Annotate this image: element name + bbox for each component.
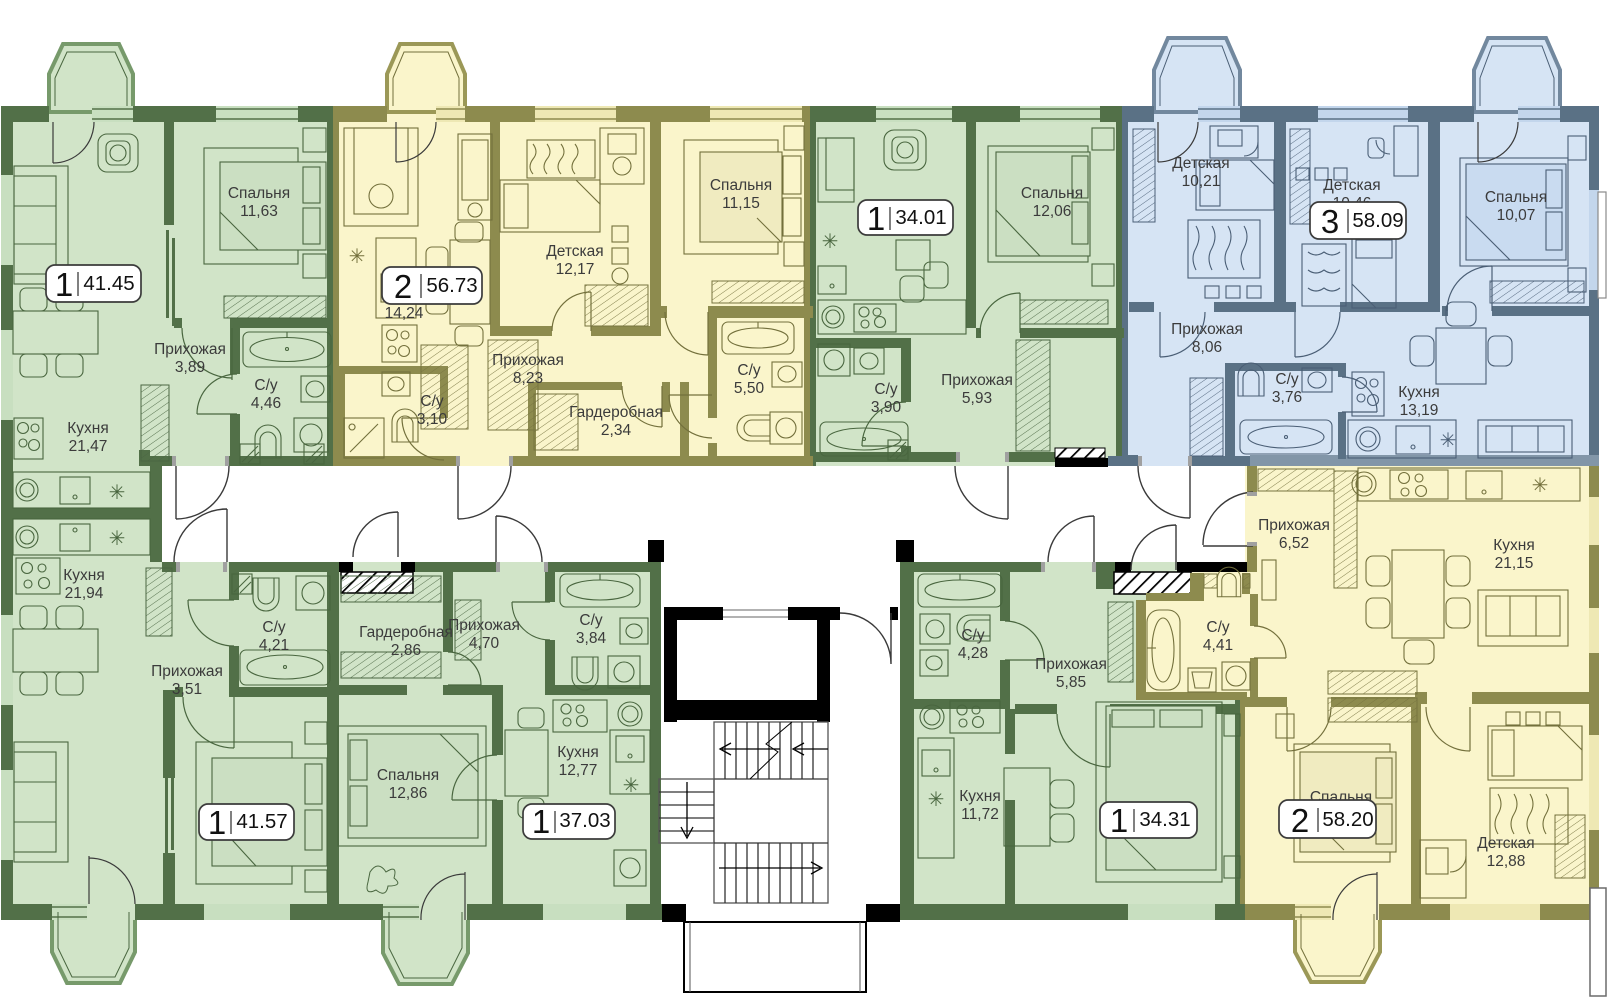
svg-text:3,76: 3,76 bbox=[1272, 389, 1302, 406]
svg-text:34.31: 34.31 bbox=[1139, 808, 1190, 831]
svg-text:12,06: 12,06 bbox=[1033, 203, 1072, 220]
svg-text:Кухня: Кухня bbox=[557, 744, 598, 761]
svg-text:✳: ✳ bbox=[109, 482, 126, 504]
svg-text:С/у: С/у bbox=[420, 393, 444, 410]
svg-text:Детская: Детская bbox=[1477, 835, 1534, 852]
svg-text:4,41: 4,41 bbox=[1203, 637, 1233, 654]
svg-text:3,90: 3,90 bbox=[871, 399, 902, 416]
svg-text:21,47: 21,47 bbox=[69, 438, 108, 455]
svg-text:10,21: 10,21 bbox=[1182, 173, 1221, 190]
svg-text:1: 1 bbox=[55, 266, 73, 303]
svg-text:Кухня: Кухня bbox=[67, 420, 108, 437]
svg-text:14,24: 14,24 bbox=[385, 305, 424, 322]
svg-text:С/у: С/у bbox=[874, 381, 898, 398]
svg-text:5,50: 5,50 bbox=[734, 380, 765, 397]
svg-text:41.57: 41.57 bbox=[236, 810, 287, 833]
svg-text:Прихожая: Прихожая bbox=[448, 617, 520, 634]
svg-text:Прихожая: Прихожая bbox=[941, 372, 1013, 389]
svg-text:✳: ✳ bbox=[623, 775, 640, 797]
svg-text:37.03: 37.03 bbox=[559, 809, 610, 832]
svg-text:12,77: 12,77 bbox=[559, 762, 598, 779]
svg-text:12,88: 12,88 bbox=[1487, 853, 1526, 870]
svg-text:Спальня: Спальня bbox=[377, 767, 439, 784]
svg-text:Прихожая: Прихожая bbox=[154, 341, 226, 358]
svg-text:21,94: 21,94 bbox=[65, 585, 104, 602]
svg-text:✳: ✳ bbox=[1532, 475, 1549, 497]
svg-text:3,84: 3,84 bbox=[576, 630, 607, 647]
svg-text:1: 1 bbox=[1110, 802, 1128, 839]
svg-text:41.45: 41.45 bbox=[83, 272, 134, 295]
svg-text:5,93: 5,93 bbox=[962, 390, 992, 407]
svg-text:1: 1 bbox=[532, 803, 550, 840]
svg-text:2: 2 bbox=[1291, 802, 1309, 839]
svg-text:✳: ✳ bbox=[928, 789, 945, 811]
svg-text:Кухня: Кухня bbox=[1493, 537, 1534, 554]
svg-text:Детская: Детская bbox=[1323, 177, 1380, 194]
svg-text:11,63: 11,63 bbox=[240, 203, 278, 220]
svg-text:12,17: 12,17 bbox=[556, 261, 595, 278]
svg-text:10,07: 10,07 bbox=[1497, 207, 1536, 224]
svg-text:34.01: 34.01 bbox=[895, 206, 946, 229]
svg-text:2,86: 2,86 bbox=[391, 642, 421, 659]
svg-text:4,28: 4,28 bbox=[958, 645, 988, 662]
svg-text:Кухня: Кухня bbox=[1398, 384, 1439, 401]
svg-text:✳: ✳ bbox=[1440, 430, 1457, 452]
svg-text:С/у: С/у bbox=[737, 362, 761, 379]
svg-text:13,19: 13,19 bbox=[1400, 402, 1439, 419]
svg-text:Кухня: Кухня bbox=[959, 788, 1000, 805]
svg-text:Гардеробная: Гардеробная bbox=[359, 624, 453, 641]
svg-text:58.09: 58.09 bbox=[1352, 209, 1403, 232]
svg-text:12,86: 12,86 bbox=[389, 785, 428, 802]
svg-text:8,06: 8,06 bbox=[1192, 339, 1222, 356]
svg-text:✳: ✳ bbox=[349, 246, 366, 268]
svg-text:4,46: 4,46 bbox=[251, 395, 281, 412]
svg-text:21,15: 21,15 bbox=[1495, 555, 1534, 572]
svg-text:Прихожая: Прихожая bbox=[492, 352, 564, 369]
svg-text:8,23: 8,23 bbox=[513, 370, 543, 387]
svg-text:3: 3 bbox=[1321, 203, 1339, 240]
svg-text:Спальня: Спальня bbox=[228, 185, 290, 202]
svg-text:✳: ✳ bbox=[109, 528, 126, 550]
svg-text:58.20: 58.20 bbox=[1322, 808, 1373, 831]
svg-text:С/у: С/у bbox=[1206, 619, 1230, 636]
svg-text:Прихожая: Прихожая bbox=[151, 663, 223, 680]
svg-text:С/у: С/у bbox=[262, 619, 286, 636]
svg-text:3,89: 3,89 bbox=[175, 359, 205, 376]
svg-text:Прихожая: Прихожая bbox=[1171, 321, 1243, 338]
svg-text:Спальня: Спальня bbox=[1485, 189, 1547, 206]
svg-text:Спальня: Спальня bbox=[1021, 185, 1083, 202]
svg-text:Детская: Детская bbox=[546, 243, 603, 260]
svg-text:Прихожая: Прихожая bbox=[1258, 517, 1330, 534]
svg-text:4,21: 4,21 bbox=[259, 637, 289, 654]
svg-text:Прихожая: Прихожая bbox=[1035, 656, 1107, 673]
svg-text:С/у: С/у bbox=[961, 627, 985, 644]
svg-text:Гардеробная: Гардеробная bbox=[569, 404, 663, 421]
svg-text:6,52: 6,52 bbox=[1279, 535, 1309, 552]
svg-text:Кухня: Кухня bbox=[63, 567, 104, 584]
svg-text:Детская: Детская bbox=[1172, 155, 1229, 172]
svg-text:С/у: С/у bbox=[579, 612, 603, 629]
svg-text:Спальня: Спальня bbox=[710, 177, 772, 194]
svg-text:11,15: 11,15 bbox=[722, 195, 760, 212]
svg-text:✳: ✳ bbox=[822, 231, 839, 253]
svg-text:4,70: 4,70 bbox=[469, 635, 500, 652]
svg-text:3,51: 3,51 bbox=[172, 681, 202, 698]
svg-text:2,34: 2,34 bbox=[601, 422, 632, 439]
svg-text:1: 1 bbox=[208, 804, 226, 841]
svg-text:С/у: С/у bbox=[1275, 371, 1299, 388]
svg-text:56.73: 56.73 bbox=[426, 274, 477, 297]
svg-text:11,72: 11,72 bbox=[961, 806, 999, 823]
svg-text:3,10: 3,10 bbox=[417, 411, 448, 428]
svg-text:1: 1 bbox=[867, 200, 885, 237]
svg-text:5,85: 5,85 bbox=[1056, 674, 1086, 691]
svg-text:С/у: С/у bbox=[254, 377, 278, 394]
svg-text:2: 2 bbox=[394, 268, 412, 305]
